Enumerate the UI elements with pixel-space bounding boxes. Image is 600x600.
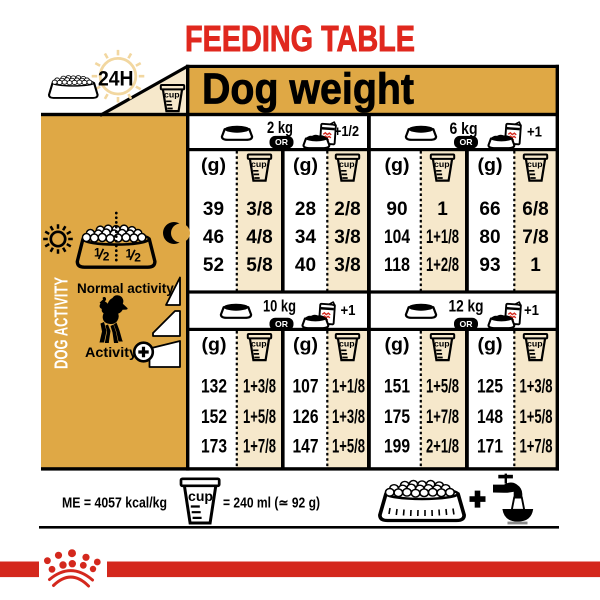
svg-text:104: 104 xyxy=(384,227,410,248)
svg-text:1: 1 xyxy=(530,255,541,276)
svg-text:Normal activity: Normal activity xyxy=(77,281,174,296)
svg-text:(g): (g) xyxy=(293,155,318,175)
svg-text:(g): (g) xyxy=(202,335,227,355)
svg-text:1+3/8: 1+3/8 xyxy=(332,407,365,428)
svg-text:+1: +1 xyxy=(527,124,542,141)
svg-text:90: 90 xyxy=(386,199,407,220)
svg-text:+1/2: +1/2 xyxy=(334,123,359,140)
svg-text:1+7/8: 1+7/8 xyxy=(520,437,553,458)
svg-text:152: 152 xyxy=(201,407,227,428)
svg-text:1+3/8: 1+3/8 xyxy=(520,377,553,398)
svg-text:12 kg: 12 kg xyxy=(449,298,484,316)
svg-text:= 240 ml (≃ 92 g): = 240 ml (≃ 92 g) xyxy=(223,496,320,512)
svg-text:39: 39 xyxy=(203,199,224,220)
svg-text:(g): (g) xyxy=(293,335,318,355)
svg-text:(g): (g) xyxy=(385,155,410,175)
svg-text:Activity: Activity xyxy=(85,345,138,360)
svg-text:5/8: 5/8 xyxy=(246,255,272,276)
svg-text:3/8: 3/8 xyxy=(334,227,360,248)
svg-text:125: 125 xyxy=(477,377,503,398)
svg-text:1: 1 xyxy=(437,199,448,220)
svg-text:(g): (g) xyxy=(385,335,410,355)
svg-text:Dog weight: Dog weight xyxy=(202,65,414,114)
svg-text:+1: +1 xyxy=(341,302,356,319)
svg-text:34: 34 xyxy=(295,227,317,248)
svg-text:1+5/8: 1+5/8 xyxy=(332,437,365,458)
svg-text:132: 132 xyxy=(201,377,227,398)
svg-text:2 kg: 2 kg xyxy=(267,119,293,137)
svg-text:1+1/8: 1+1/8 xyxy=(332,377,365,398)
svg-text:151: 151 xyxy=(384,377,410,398)
svg-text:FEEDING TABLE: FEEDING TABLE xyxy=(185,18,415,59)
svg-text:ME = 4057 kcal/kg: ME = 4057 kcal/kg xyxy=(62,496,167,512)
svg-text:4/8: 4/8 xyxy=(246,227,272,248)
svg-text:107: 107 xyxy=(293,377,319,398)
svg-text:80: 80 xyxy=(479,227,500,248)
svg-text:(g): (g) xyxy=(201,155,226,175)
svg-text:148: 148 xyxy=(477,407,503,428)
svg-text:24H: 24H xyxy=(98,68,134,91)
svg-text:2/8: 2/8 xyxy=(334,199,360,220)
svg-text:1+2/8: 1+2/8 xyxy=(426,255,459,276)
svg-text:126: 126 xyxy=(293,407,319,428)
svg-text:3/8: 3/8 xyxy=(246,199,272,220)
svg-text:1+3/8: 1+3/8 xyxy=(243,377,276,398)
svg-text:DOG ACTIVITY: DOG ACTIVITY xyxy=(52,277,72,369)
svg-text:46: 46 xyxy=(203,227,224,248)
svg-text:2: 2 xyxy=(103,250,110,264)
svg-text:199: 199 xyxy=(384,437,410,458)
svg-text:10 kg: 10 kg xyxy=(263,298,296,316)
svg-text:147: 147 xyxy=(293,437,319,458)
svg-text:(g): (g) xyxy=(478,155,503,175)
svg-text:1+7/8: 1+7/8 xyxy=(243,437,276,458)
svg-text:7/8: 7/8 xyxy=(522,227,548,248)
svg-text:93: 93 xyxy=(479,255,500,276)
svg-text:1+1/8: 1+1/8 xyxy=(426,227,459,248)
svg-text:40: 40 xyxy=(295,255,316,276)
svg-text:175: 175 xyxy=(384,407,410,428)
svg-text:2: 2 xyxy=(134,251,141,265)
svg-text:28: 28 xyxy=(295,199,316,220)
svg-text:6/8: 6/8 xyxy=(522,199,548,220)
svg-text:66: 66 xyxy=(479,199,500,220)
svg-text:1+7/8: 1+7/8 xyxy=(426,407,459,428)
svg-text:173: 173 xyxy=(201,437,227,458)
svg-text:1+5/8: 1+5/8 xyxy=(243,407,276,428)
svg-text:2+1/8: 2+1/8 xyxy=(426,437,459,458)
svg-text:52: 52 xyxy=(203,255,224,276)
svg-text:6 kg: 6 kg xyxy=(450,120,478,138)
svg-text:171: 171 xyxy=(477,437,503,458)
svg-text:118: 118 xyxy=(384,255,410,276)
svg-text:+1: +1 xyxy=(524,302,539,319)
svg-text:(g): (g) xyxy=(478,335,503,355)
svg-text:3/8: 3/8 xyxy=(334,255,360,276)
svg-text:1+5/8: 1+5/8 xyxy=(520,407,553,428)
svg-text:1+5/8: 1+5/8 xyxy=(426,377,459,398)
